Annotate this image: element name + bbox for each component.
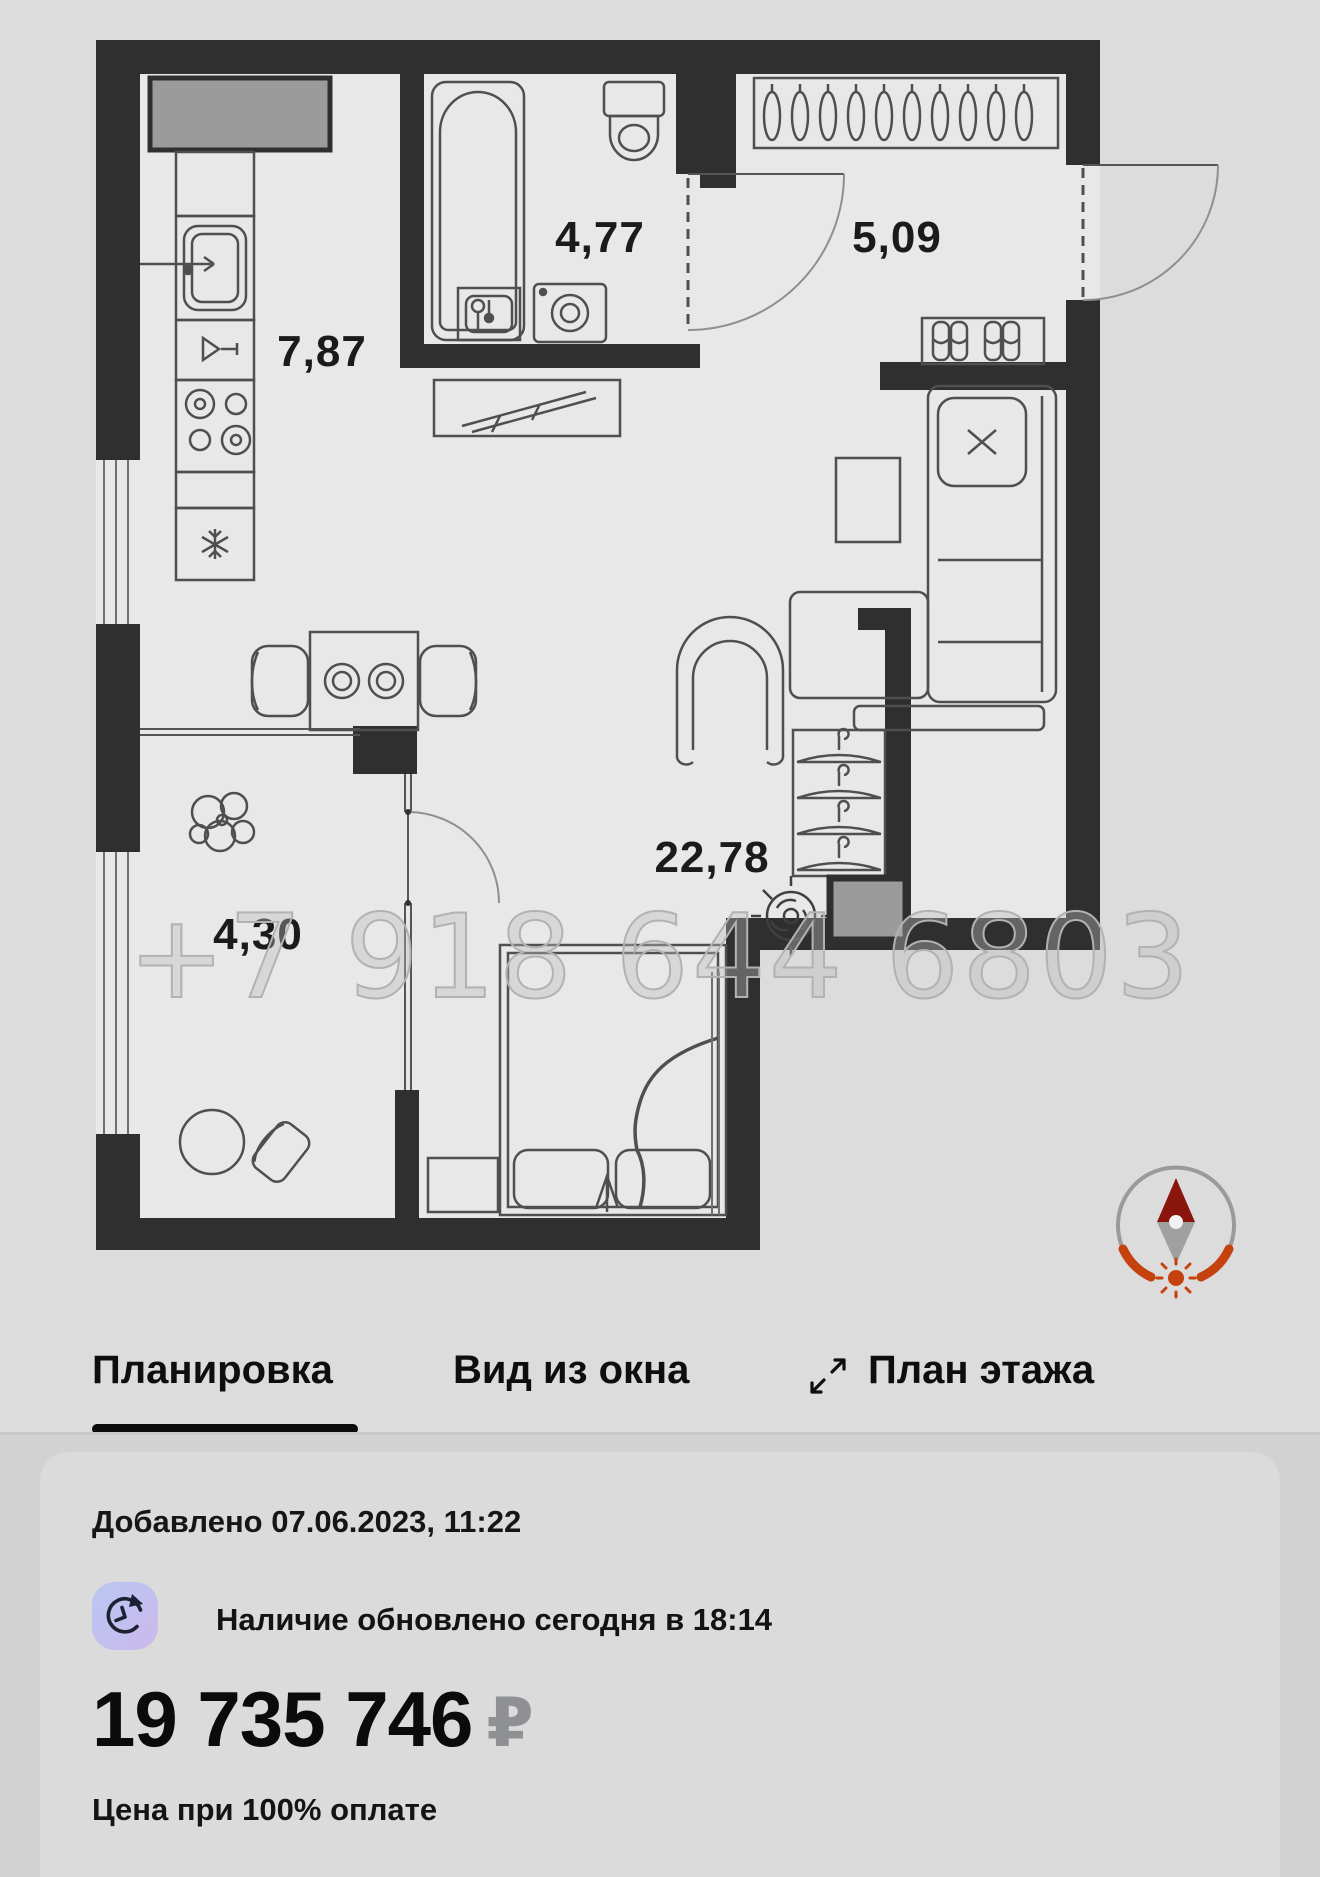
floor-plan-image[interactable]: 7,87 4,77 5,09 22,78 4,30 +7 918 644 680… bbox=[0, 0, 1320, 1340]
price-note: Цена при 100% оплате bbox=[92, 1792, 437, 1828]
availability-clock-icon bbox=[92, 1582, 158, 1650]
expand-arrows-icon[interactable] bbox=[806, 1354, 850, 1398]
listing-screen: 7,87 4,77 5,09 22,78 4,30 +7 918 644 680… bbox=[0, 0, 1320, 1877]
added-date-text: Добавлено 07.06.2023, 11:22 bbox=[92, 1504, 521, 1540]
room-label-hallway: 5,09 bbox=[852, 213, 942, 263]
vent-shaft bbox=[150, 78, 330, 150]
gallery-tabs: Планировка Вид из окна План этажа bbox=[0, 1348, 1320, 1404]
price-value: 19 735 746₽ bbox=[92, 1674, 533, 1765]
shaft-box bbox=[830, 878, 906, 940]
tab-window-view[interactable]: Вид из окна bbox=[453, 1348, 689, 1393]
room-label-bathroom: 4,77 bbox=[555, 213, 645, 263]
tab-floor-plan[interactable]: План этажа bbox=[868, 1348, 1094, 1393]
availability-text: Наличие обновлено сегодня в 18:14 bbox=[216, 1602, 772, 1638]
room-label-living-room: 22,78 bbox=[654, 833, 769, 883]
floor-plan-drawing bbox=[0, 0, 1320, 1340]
room-label-kitchen: 7,87 bbox=[277, 327, 367, 377]
price-number: 19 735 746 bbox=[92, 1675, 472, 1763]
compass-icon bbox=[1118, 1167, 1234, 1297]
currency-symbol: ₽ bbox=[486, 1684, 532, 1763]
room-label-balcony: 4,30 bbox=[213, 910, 303, 960]
price-card: Добавлено 07.06.2023, 11:22 Наличие обно… bbox=[40, 1452, 1280, 1877]
tab-layout[interactable]: Планировка bbox=[92, 1348, 333, 1393]
entrance-door-icon bbox=[1083, 165, 1218, 300]
